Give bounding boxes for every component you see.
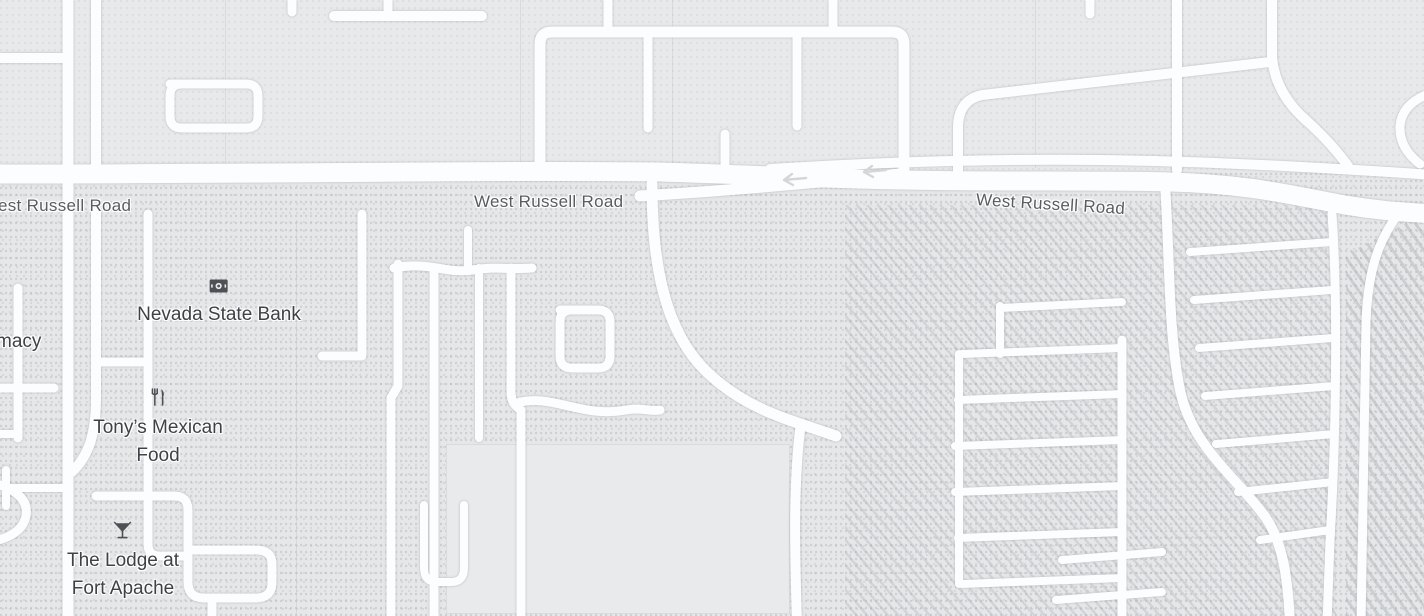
cocktail-icon [113,521,132,544]
bank-icon [210,279,229,298]
poi-label: Nevada State Bank [137,301,301,329]
poi-nevada-state-bank[interactable]: Nevada State Bank [137,279,301,329]
poi-tonys-mexican-food[interactable]: Tony’s Mexican Food [93,388,223,470]
poi-label: Fort Apache [72,575,174,603]
poi-label: The Lodge at [67,547,179,575]
poi-the-lodge-at-fort-apache[interactable]: The Lodge at Fort Apache [67,521,179,603]
poi-label: Food [136,442,179,470]
poi-label: Tony’s Mexican [93,414,223,442]
restaurant-icon [150,388,166,411]
poi-label-pharmacy-partial[interactable]: macy [0,331,41,353]
map-canvas[interactable]: est Russell Road West Russell Road West … [0,0,1424,616]
